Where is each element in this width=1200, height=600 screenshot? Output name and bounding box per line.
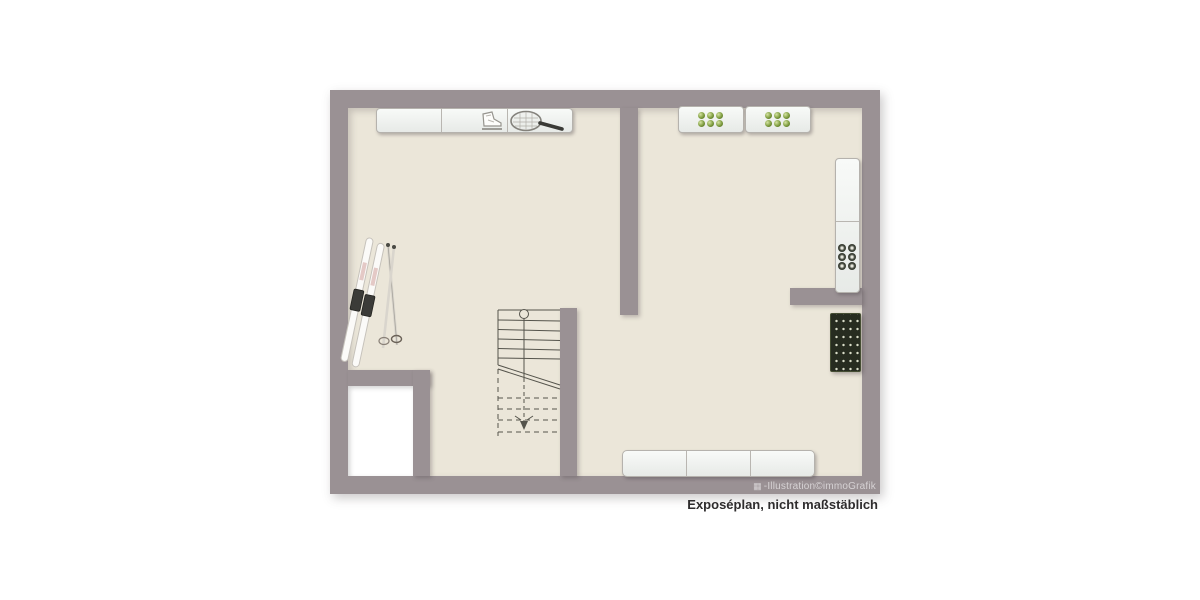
bottle-dot [774,112,781,119]
bottle-dot [698,112,705,119]
staircase [497,308,561,443]
bottle-dot [707,120,714,127]
bottle-dot [765,120,772,127]
bottle-dot [848,253,856,261]
bottle-shelf-left [678,106,744,133]
bottle-dot [774,120,781,127]
bottle-dot [765,112,772,119]
wall-shelf-section [441,109,506,132]
interior-wall-stairs [560,308,577,476]
bottle-dot [783,112,790,119]
floor-plan: ▦-Illustration©immoGrafik [330,90,880,494]
wine-rack [830,313,861,372]
bottle-dot [838,253,846,261]
bottle-dot [838,244,846,252]
bottle-dot [716,112,723,119]
cabinet-upper-section [836,159,859,222]
bottle-dot [698,120,705,127]
cabinet-bottle-dots [836,222,859,292]
wall-shelf-section [377,109,441,132]
bench-section [686,451,750,476]
bottle-dot [716,120,723,127]
tennis-racket-icon [506,110,570,133]
interior-wall-void-right [413,370,430,476]
bench-section [750,451,814,476]
interior-wall-divider [620,108,638,315]
skis-icon [338,233,408,373]
bench [622,450,815,477]
bottle-dot [848,262,856,270]
watermark: ▦-Illustration©immoGrafik [753,481,876,492]
ice-skate-icon [478,110,506,132]
bottle-dots [746,107,810,132]
bottle-dot [707,112,714,119]
bottle-dot [783,120,790,127]
floor-void-area [348,386,413,476]
tall-cabinet [835,158,860,293]
immografik-logo-icon: ▦ [753,481,762,491]
bottle-dots [679,107,743,132]
bottle-dot [848,244,856,252]
bottle-dot [838,262,846,270]
plan-caption: Exposéplan, nicht maßstäblich [330,497,878,512]
wall-shelf-section [507,109,572,132]
wall-shelf [376,108,573,133]
watermark-text: -Illustration©immoGrafik [764,481,876,492]
bench-section [623,451,686,476]
bottle-shelf-right [745,106,811,133]
